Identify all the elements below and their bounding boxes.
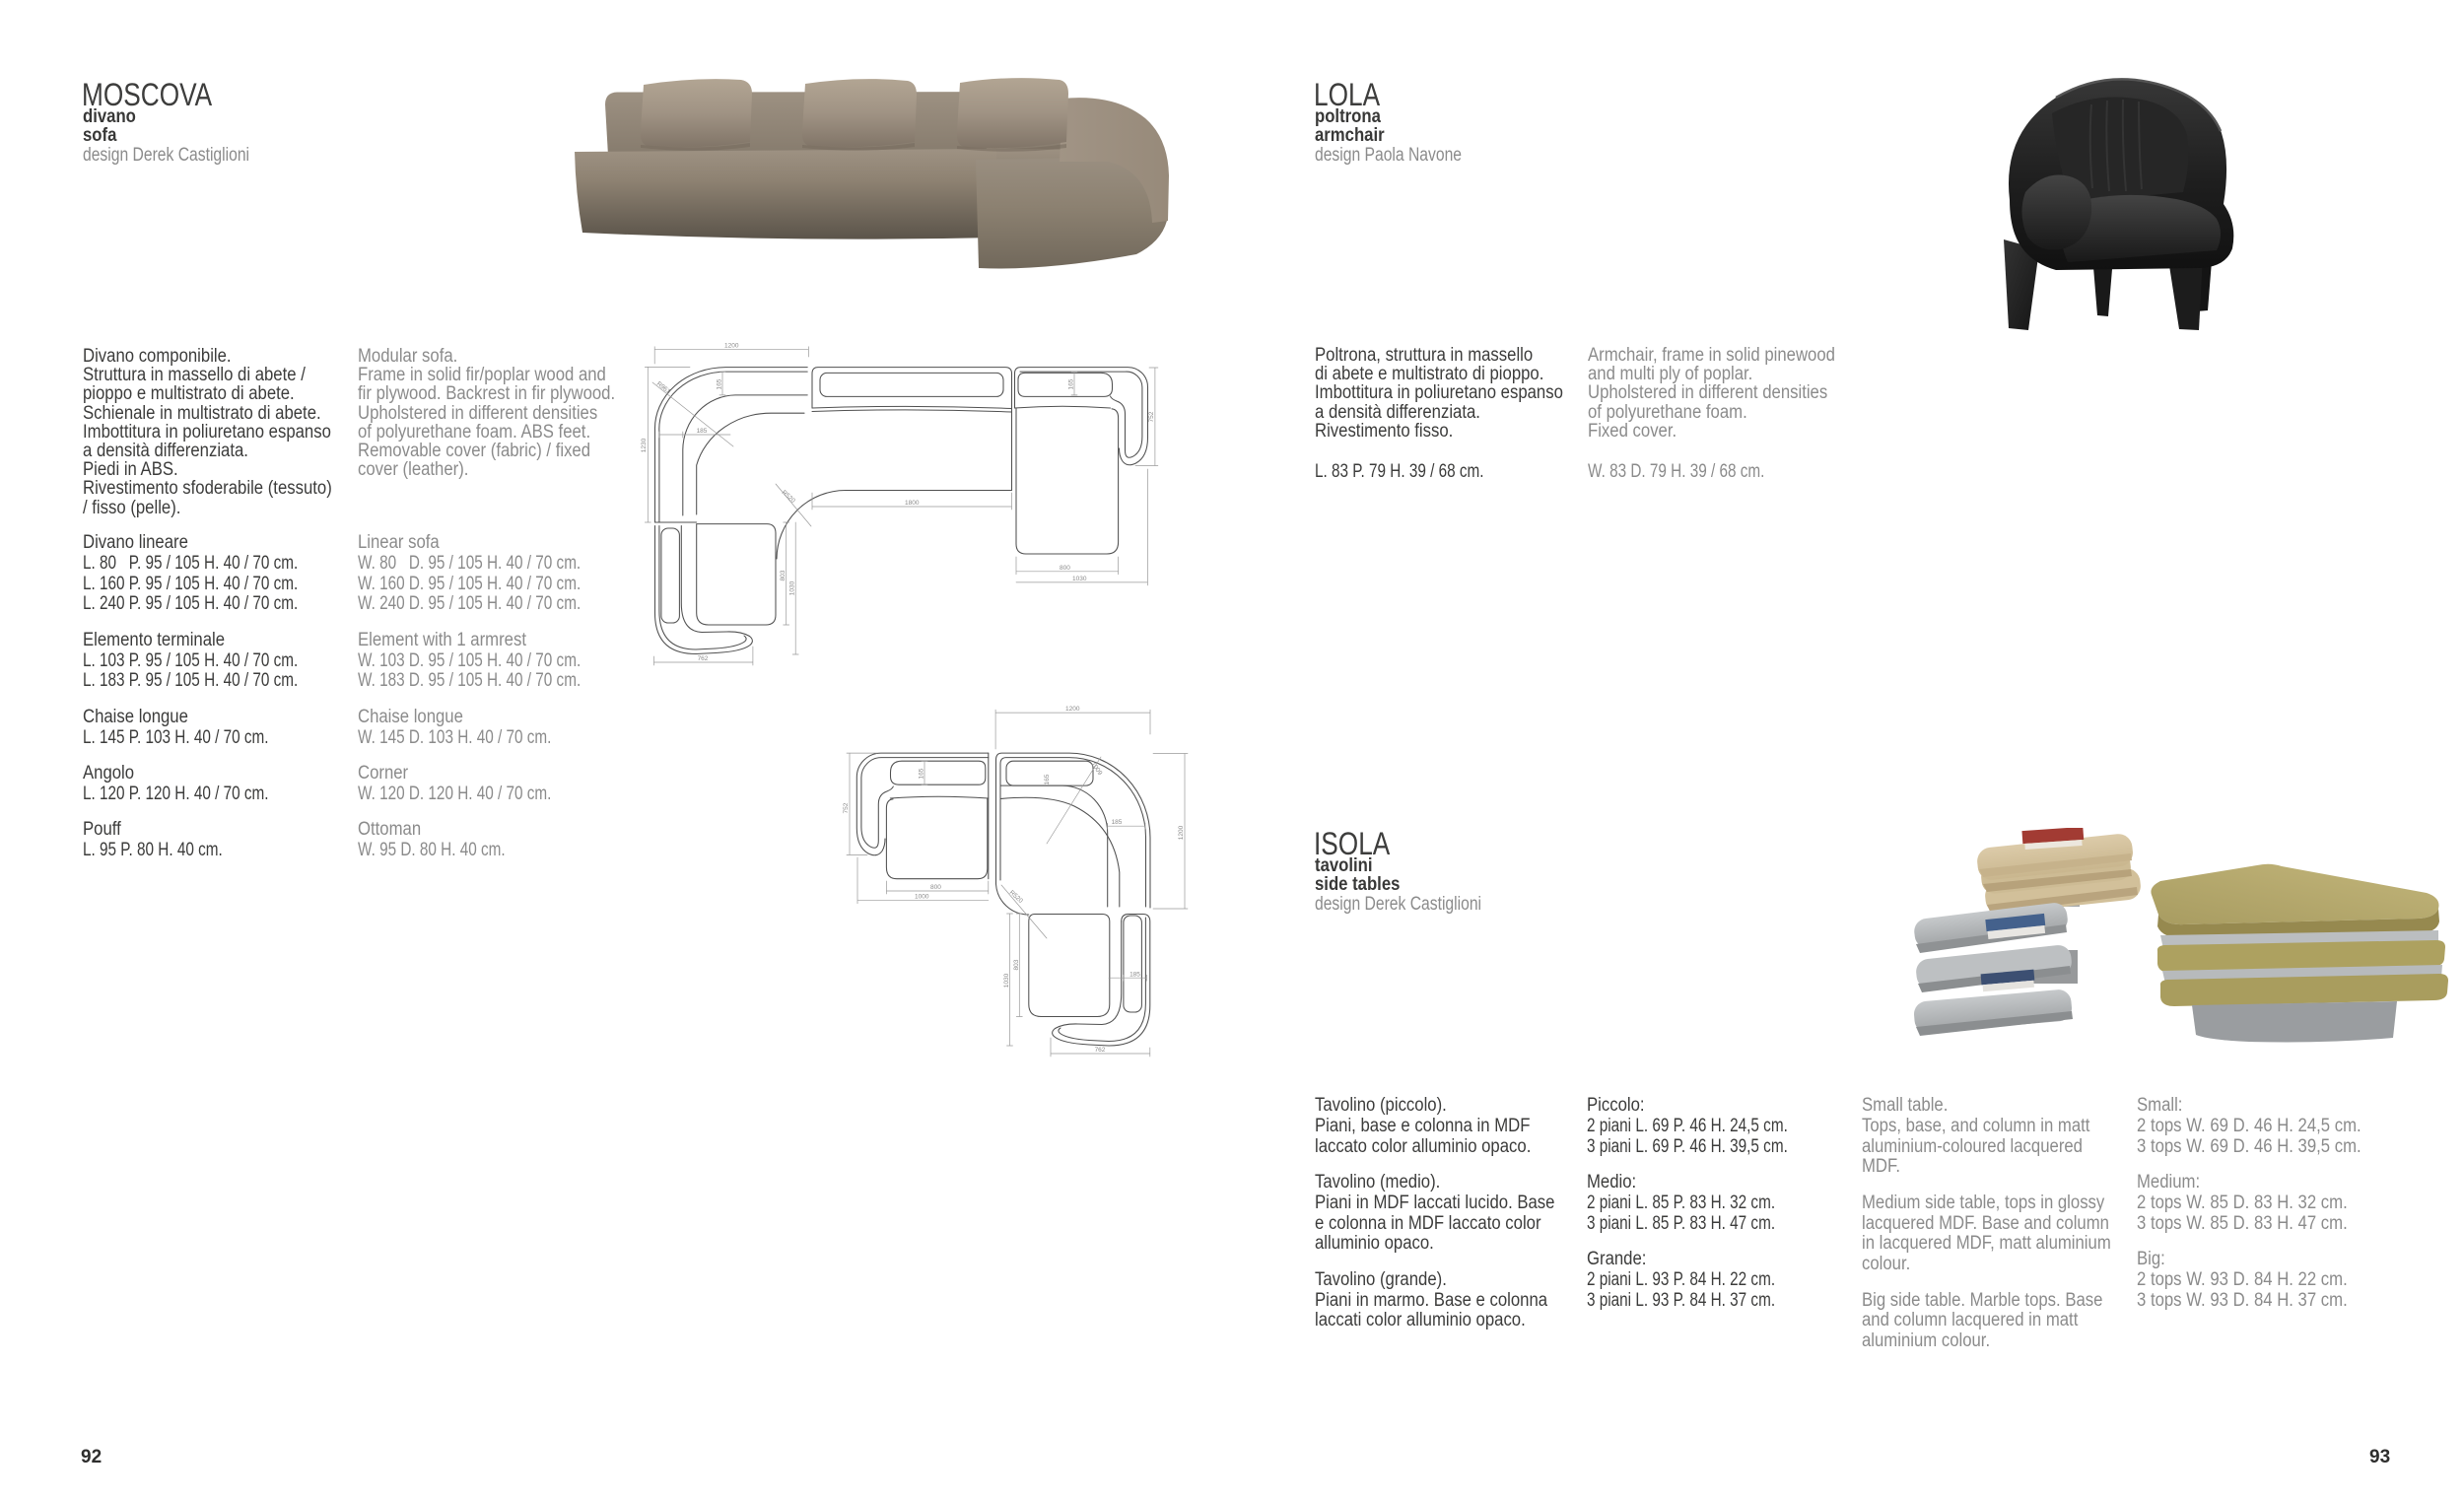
svg-text:1030: 1030 (789, 580, 796, 595)
svg-text:185: 185 (697, 428, 708, 435)
svg-text:1009: 1009 (1089, 761, 1103, 777)
svg-text:165: 165 (1044, 774, 1051, 784)
svg-text:800: 800 (1060, 565, 1070, 572)
svg-text:185: 185 (1129, 971, 1140, 978)
svg-text:762: 762 (1095, 1047, 1106, 1054)
svg-text:R520: R520 (781, 489, 797, 505)
svg-text:1030: 1030 (1003, 973, 1010, 988)
svg-text:800: 800 (930, 884, 941, 891)
svg-text:752: 752 (843, 802, 850, 813)
svg-text:185: 185 (1112, 819, 1123, 826)
svg-text:803: 803 (1013, 959, 1020, 970)
svg-text:1230: 1230 (641, 438, 648, 452)
svg-text:R961: R961 (655, 380, 672, 395)
svg-text:803: 803 (780, 570, 787, 580)
svg-text:165: 165 (1068, 378, 1075, 389)
svg-text:165: 165 (717, 378, 723, 389)
svg-text:165: 165 (919, 768, 925, 779)
svg-text:1800: 1800 (905, 500, 920, 507)
svg-text:1200: 1200 (1178, 825, 1185, 840)
svg-text:762: 762 (698, 655, 709, 662)
svg-text:752: 752 (1148, 411, 1155, 422)
svg-text:1000: 1000 (915, 894, 929, 901)
svg-text:1200: 1200 (1065, 706, 1080, 713)
svg-text:1030: 1030 (1072, 576, 1087, 582)
svg-text:1200: 1200 (724, 343, 739, 350)
